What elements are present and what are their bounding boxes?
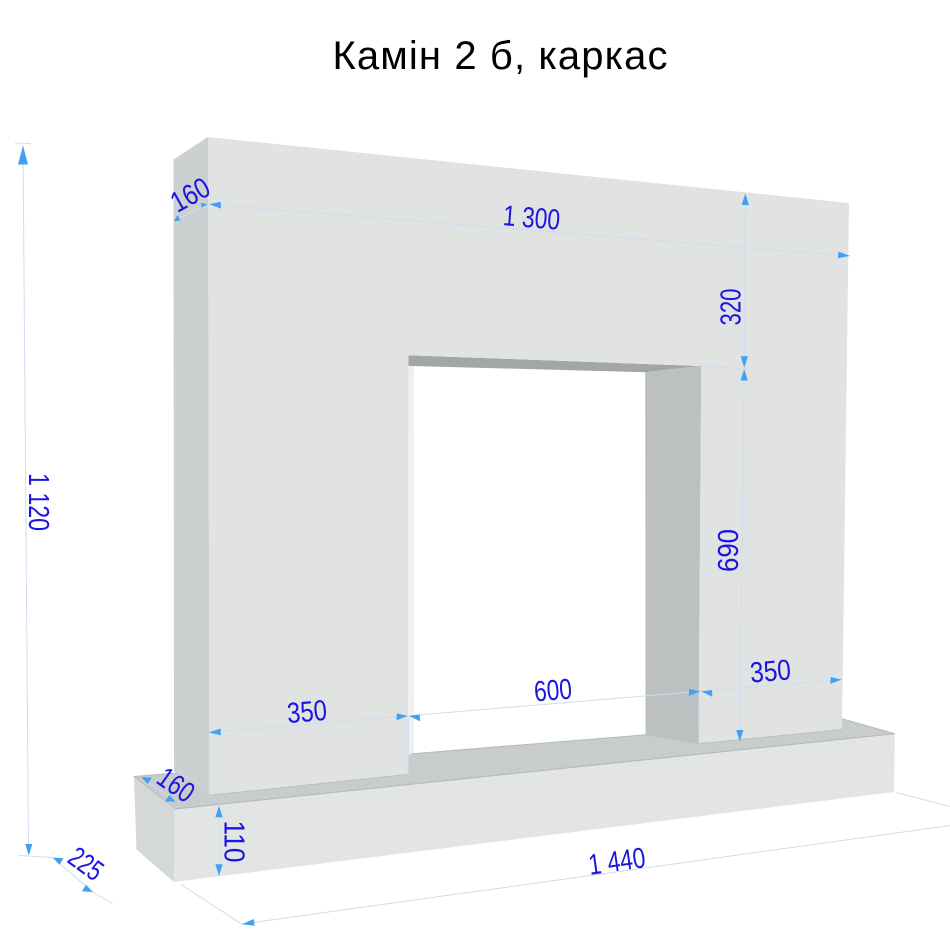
- svg-text:110: 110: [218, 821, 250, 863]
- svg-text:350: 350: [749, 654, 793, 689]
- svg-text:690: 690: [713, 529, 745, 572]
- svg-text:225: 225: [62, 841, 109, 887]
- svg-text:1 120: 1 120: [22, 473, 54, 531]
- svg-text:1 300: 1 300: [502, 200, 561, 236]
- svg-text:1 440: 1 440: [587, 842, 648, 882]
- svg-text:Камін 2 б, каркас: Камін 2 б, каркас: [333, 34, 668, 78]
- svg-text:600: 600: [533, 673, 574, 708]
- svg-text:320: 320: [716, 289, 748, 326]
- svg-text:350: 350: [286, 695, 329, 730]
